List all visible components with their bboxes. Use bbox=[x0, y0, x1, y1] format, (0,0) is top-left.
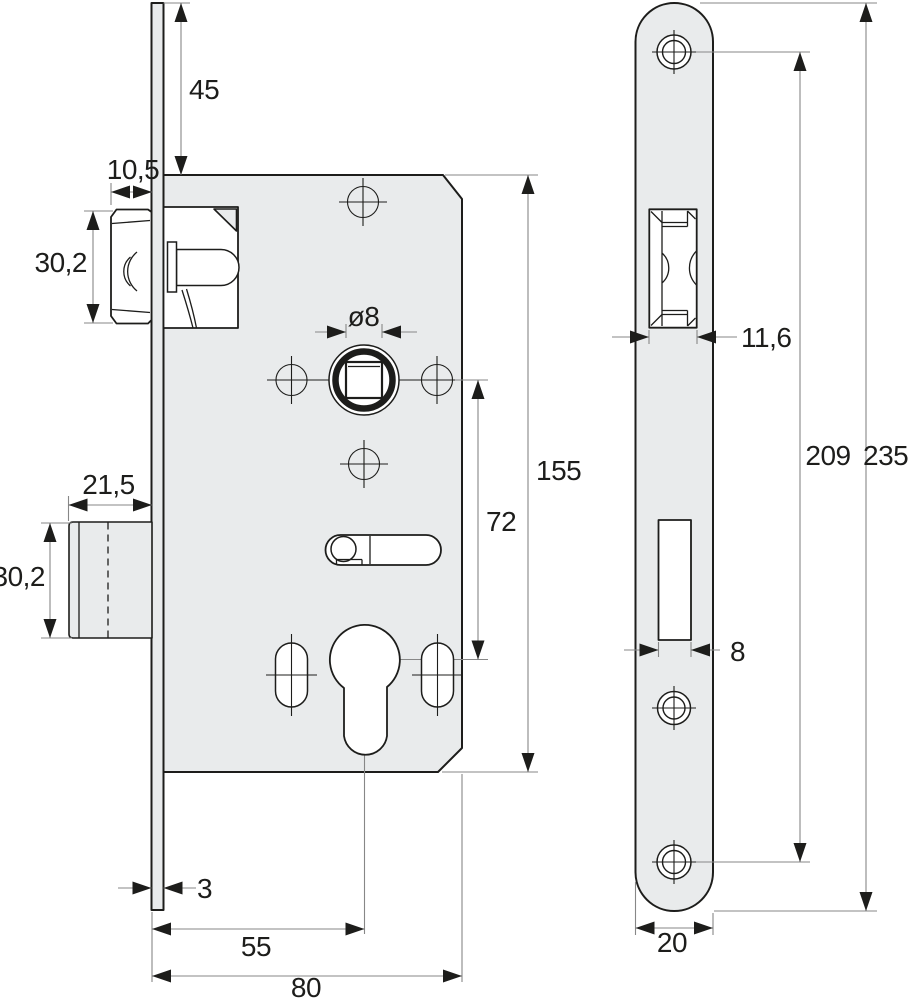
follower-lever bbox=[326, 535, 442, 565]
dim-label-72: 72 bbox=[486, 506, 516, 537]
dim-faceplate-length: 235 bbox=[700, 3, 908, 911]
deadbolt-body bbox=[69, 522, 152, 638]
dim-label-45: 45 bbox=[189, 74, 219, 105]
lever-pivot bbox=[331, 537, 356, 562]
latch-bolt-head bbox=[111, 210, 152, 324]
dim-deadbolt-height: 30,2 bbox=[0, 523, 72, 638]
spindle-square-hole bbox=[346, 362, 382, 398]
dim-label-10-5: 10,5 bbox=[107, 154, 160, 185]
lock-drawing-canvas: 45 10,5 30,2 ø8 21,5 30,2 bbox=[0, 0, 908, 1000]
dim-label-8: 8 bbox=[730, 636, 745, 667]
dim-faceplate-thickness: 3 bbox=[118, 873, 212, 904]
latch-assembly bbox=[111, 207, 239, 328]
dim-latch-height: 30,2 bbox=[35, 211, 114, 323]
dim-faceplate-top-to-case: 45 bbox=[164, 3, 220, 175]
deadbolt bbox=[69, 522, 152, 638]
spindle-follower bbox=[329, 345, 399, 415]
dim-label-55: 55 bbox=[241, 931, 271, 962]
dim-label-21-5: 21,5 bbox=[82, 469, 135, 500]
dim-label-30-2-latch: 30,2 bbox=[35, 247, 88, 278]
dim-label-80: 80 bbox=[291, 972, 321, 1000]
dim-label-209: 209 bbox=[805, 440, 850, 471]
latch-cutout bbox=[649, 209, 696, 327]
dim-screw-hole-spacing: 209 bbox=[696, 52, 851, 862]
dim-label-235: 235 bbox=[863, 440, 908, 471]
deadbolt-cutout bbox=[659, 520, 692, 640]
dim-label-20: 20 bbox=[657, 927, 687, 958]
dim-label-11-6: 11,6 bbox=[741, 322, 791, 353]
side-view bbox=[636, 3, 714, 911]
dim-label-3: 3 bbox=[197, 873, 212, 904]
dim-label-155: 155 bbox=[536, 455, 581, 486]
faceplate-side bbox=[636, 3, 714, 911]
dim-deadbolt-throw: 21,5 bbox=[69, 469, 153, 521]
latch-shaft bbox=[177, 250, 240, 286]
dim-label-o8: ø8 bbox=[348, 301, 380, 332]
dim-spindle-to-cylinder: 72 bbox=[455, 380, 516, 660]
dim-label-30-2-bolt: 30,2 bbox=[0, 561, 45, 592]
faceplate-front bbox=[152, 3, 164, 910]
technical-drawing: 45 10,5 30,2 ø8 21,5 30,2 bbox=[0, 0, 908, 1000]
latch-stem bbox=[168, 242, 177, 292]
dim-backset: 55 bbox=[152, 912, 365, 982]
